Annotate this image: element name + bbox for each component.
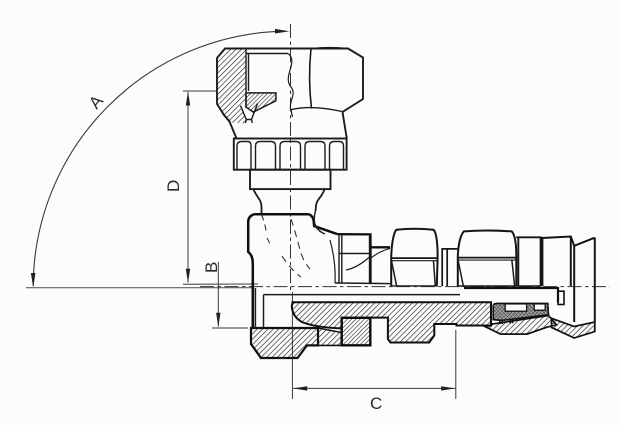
svg-text:C: C — [370, 394, 382, 413]
svg-text:B: B — [202, 262, 221, 273]
svg-text:A: A — [85, 91, 107, 112]
svg-text:D: D — [164, 180, 183, 192]
